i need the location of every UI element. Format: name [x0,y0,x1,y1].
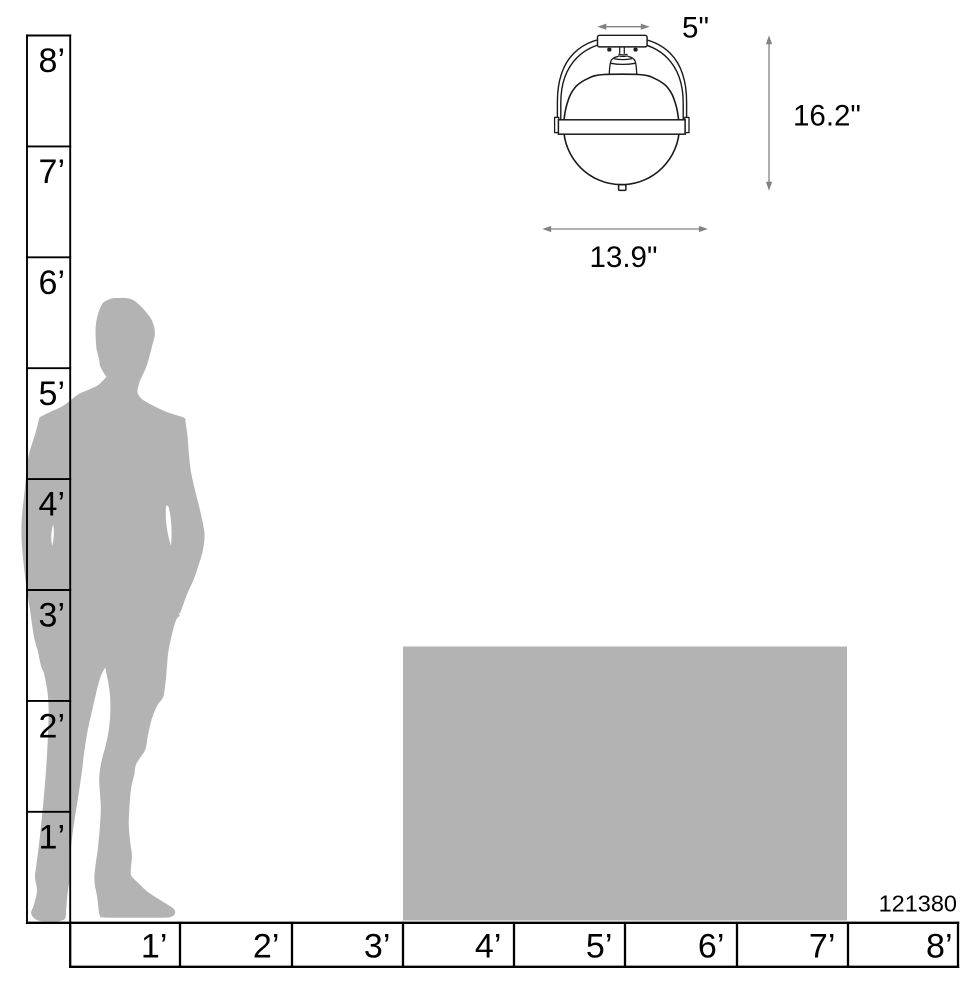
svg-text:8’: 8’ [926,927,952,965]
svg-text:1’: 1’ [39,818,65,856]
svg-text:5’: 5’ [39,375,65,413]
svg-text:8’: 8’ [39,42,65,80]
svg-text:5": 5" [682,12,709,45]
svg-text:4’: 4’ [39,486,65,524]
svg-text:7’: 7’ [39,153,65,191]
svg-text:16.2": 16.2" [793,100,861,133]
svg-text:13.9": 13.9" [590,241,658,274]
svg-text:2’: 2’ [39,708,65,746]
svg-text:3’: 3’ [39,597,65,635]
svg-text:6’: 6’ [39,264,65,302]
svg-text:121380: 121380 [879,890,957,916]
svg-text:2’: 2’ [253,927,279,965]
svg-text:1’: 1’ [141,927,167,965]
svg-text:3’: 3’ [364,927,390,965]
svg-text:7’: 7’ [809,927,835,965]
svg-text:4’: 4’ [475,927,501,965]
svg-text:5’: 5’ [586,927,612,965]
svg-text:6’: 6’ [698,927,724,965]
